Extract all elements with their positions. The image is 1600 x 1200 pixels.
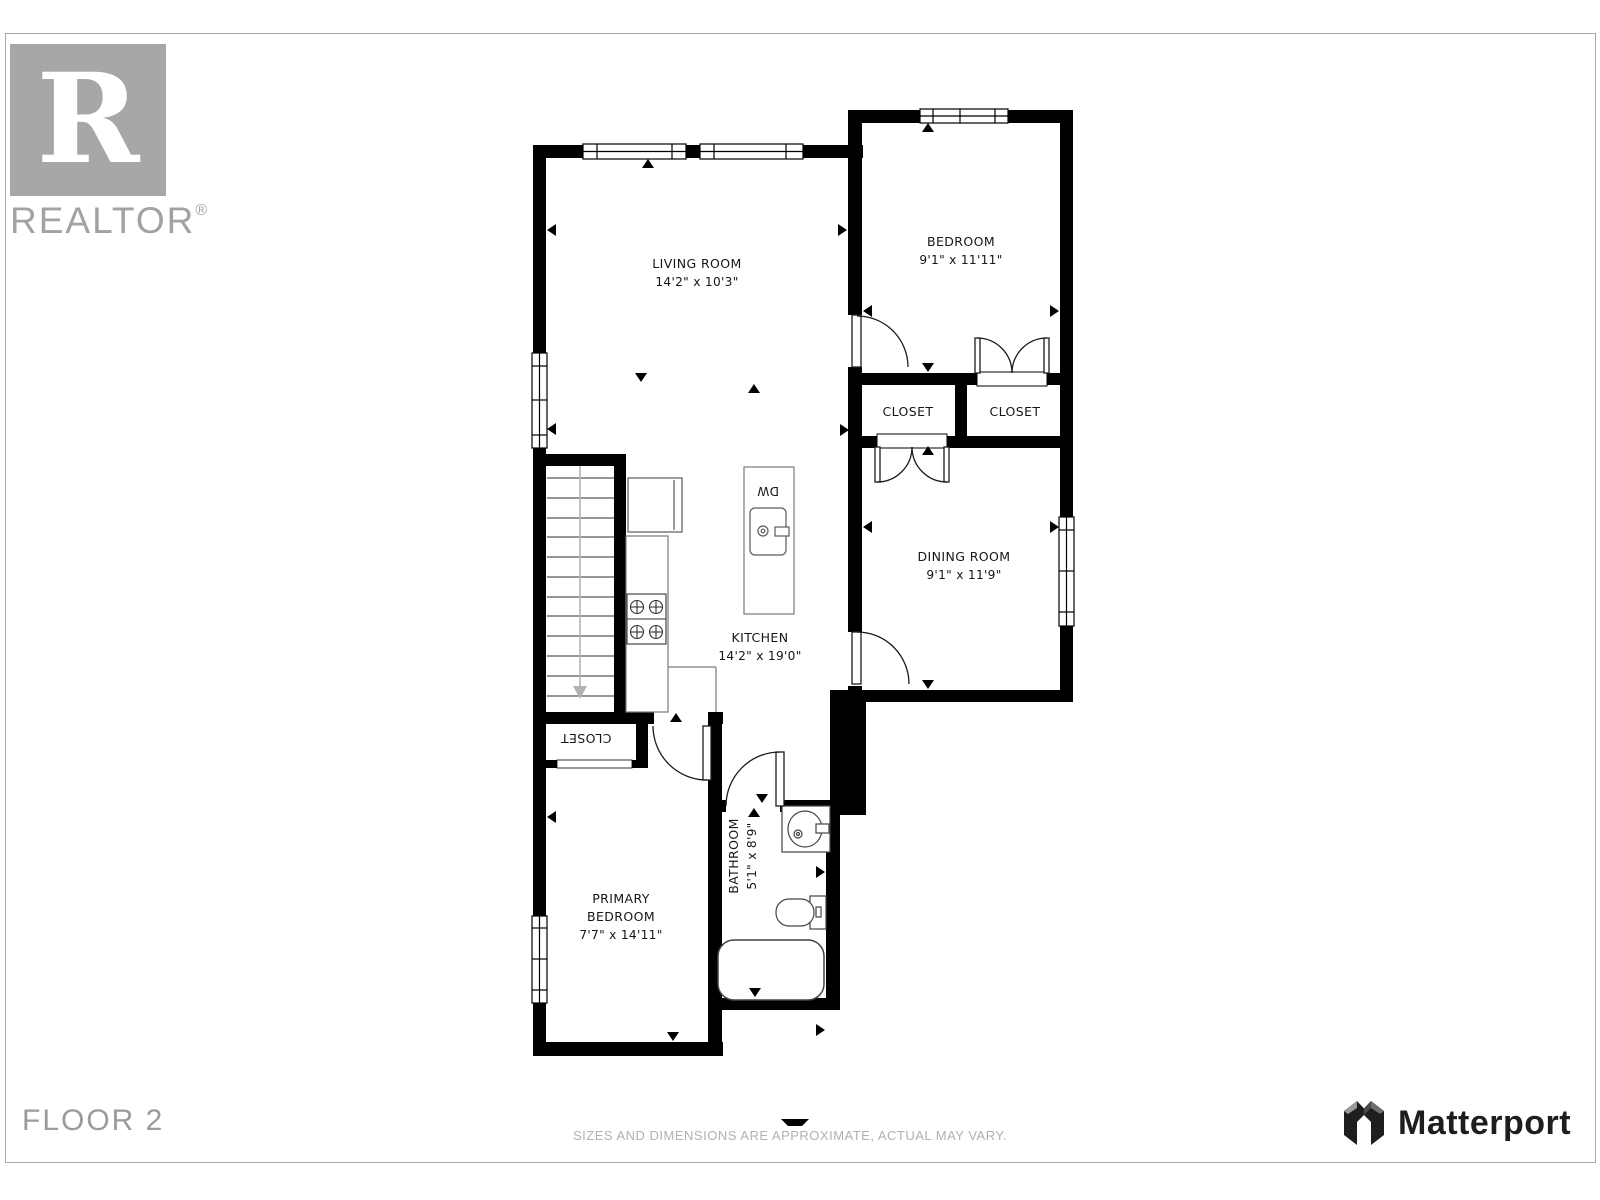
door-kitchen-hall <box>653 726 711 780</box>
room-label-primary-line2: BEDROOM <box>587 909 655 924</box>
bathroom-sink-icon <box>782 806 830 852</box>
double-door-dining-closet <box>875 447 949 482</box>
window-dining-right <box>1059 517 1074 626</box>
bathtub-icon <box>718 940 824 1000</box>
matterport-icon <box>1342 1100 1386 1146</box>
room-label-living-room: LIVING ROOM <box>652 256 741 271</box>
matterport-logo: Matterport <box>1342 1100 1571 1146</box>
room-dims-living-room: 14'2" x 10'3" <box>655 275 738 289</box>
window-living-left <box>532 353 547 448</box>
room-label-closet-a: CLOSET <box>883 404 934 419</box>
room-dims-bedroom: 9'1" x 11'11" <box>919 253 1002 267</box>
kitchen-fixtures <box>626 467 794 712</box>
room-dims-kitchen: 14'2" x 19'0" <box>718 649 801 663</box>
room-label-closet-b: CLOSET <box>990 404 1041 419</box>
staircase <box>547 466 614 699</box>
room-label-bathroom: BATHROOM <box>726 818 741 894</box>
floorplan-drawing: LIVING ROOM 14'2" x 10'3" BEDROOM 9'1" x… <box>0 0 1600 1200</box>
double-door-bedroom-closet <box>975 338 1049 373</box>
window-living-top-2 <box>700 144 803 159</box>
room-label-kitchen: KITCHEN <box>732 630 789 645</box>
window-bedroom-top <box>920 109 1008 123</box>
matterport-wordmark: Matterport <box>1398 1104 1571 1143</box>
room-dims-bathroom: 5'1" x 8'9" <box>745 822 759 889</box>
stove-icon <box>627 594 666 644</box>
room-label-closet-c: CLOSET <box>561 731 612 746</box>
bottom-marker <box>781 1119 809 1126</box>
room-dims-primary: 7'7" x 14'11" <box>579 928 662 942</box>
room-label-bedroom: BEDROOM <box>927 234 995 249</box>
door-bedroom <box>852 315 908 367</box>
fridge-icon <box>628 478 682 532</box>
room-dims-dining-room: 9'1" x 11'9" <box>926 568 1001 582</box>
toilet-icon <box>776 896 826 929</box>
dishwasher-label: DW <box>757 484 779 498</box>
window-living-top-1 <box>583 144 686 159</box>
window-primary-left <box>532 916 547 1003</box>
floorplan-page: R REALTOR® <box>0 0 1600 1200</box>
door-bathroom <box>726 752 784 806</box>
room-label-primary-line1: PRIMARY <box>592 891 650 906</box>
door-dining <box>852 632 909 684</box>
room-label-dining-room: DINING ROOM <box>918 549 1011 564</box>
stairs-down-arrow-icon <box>573 686 587 699</box>
